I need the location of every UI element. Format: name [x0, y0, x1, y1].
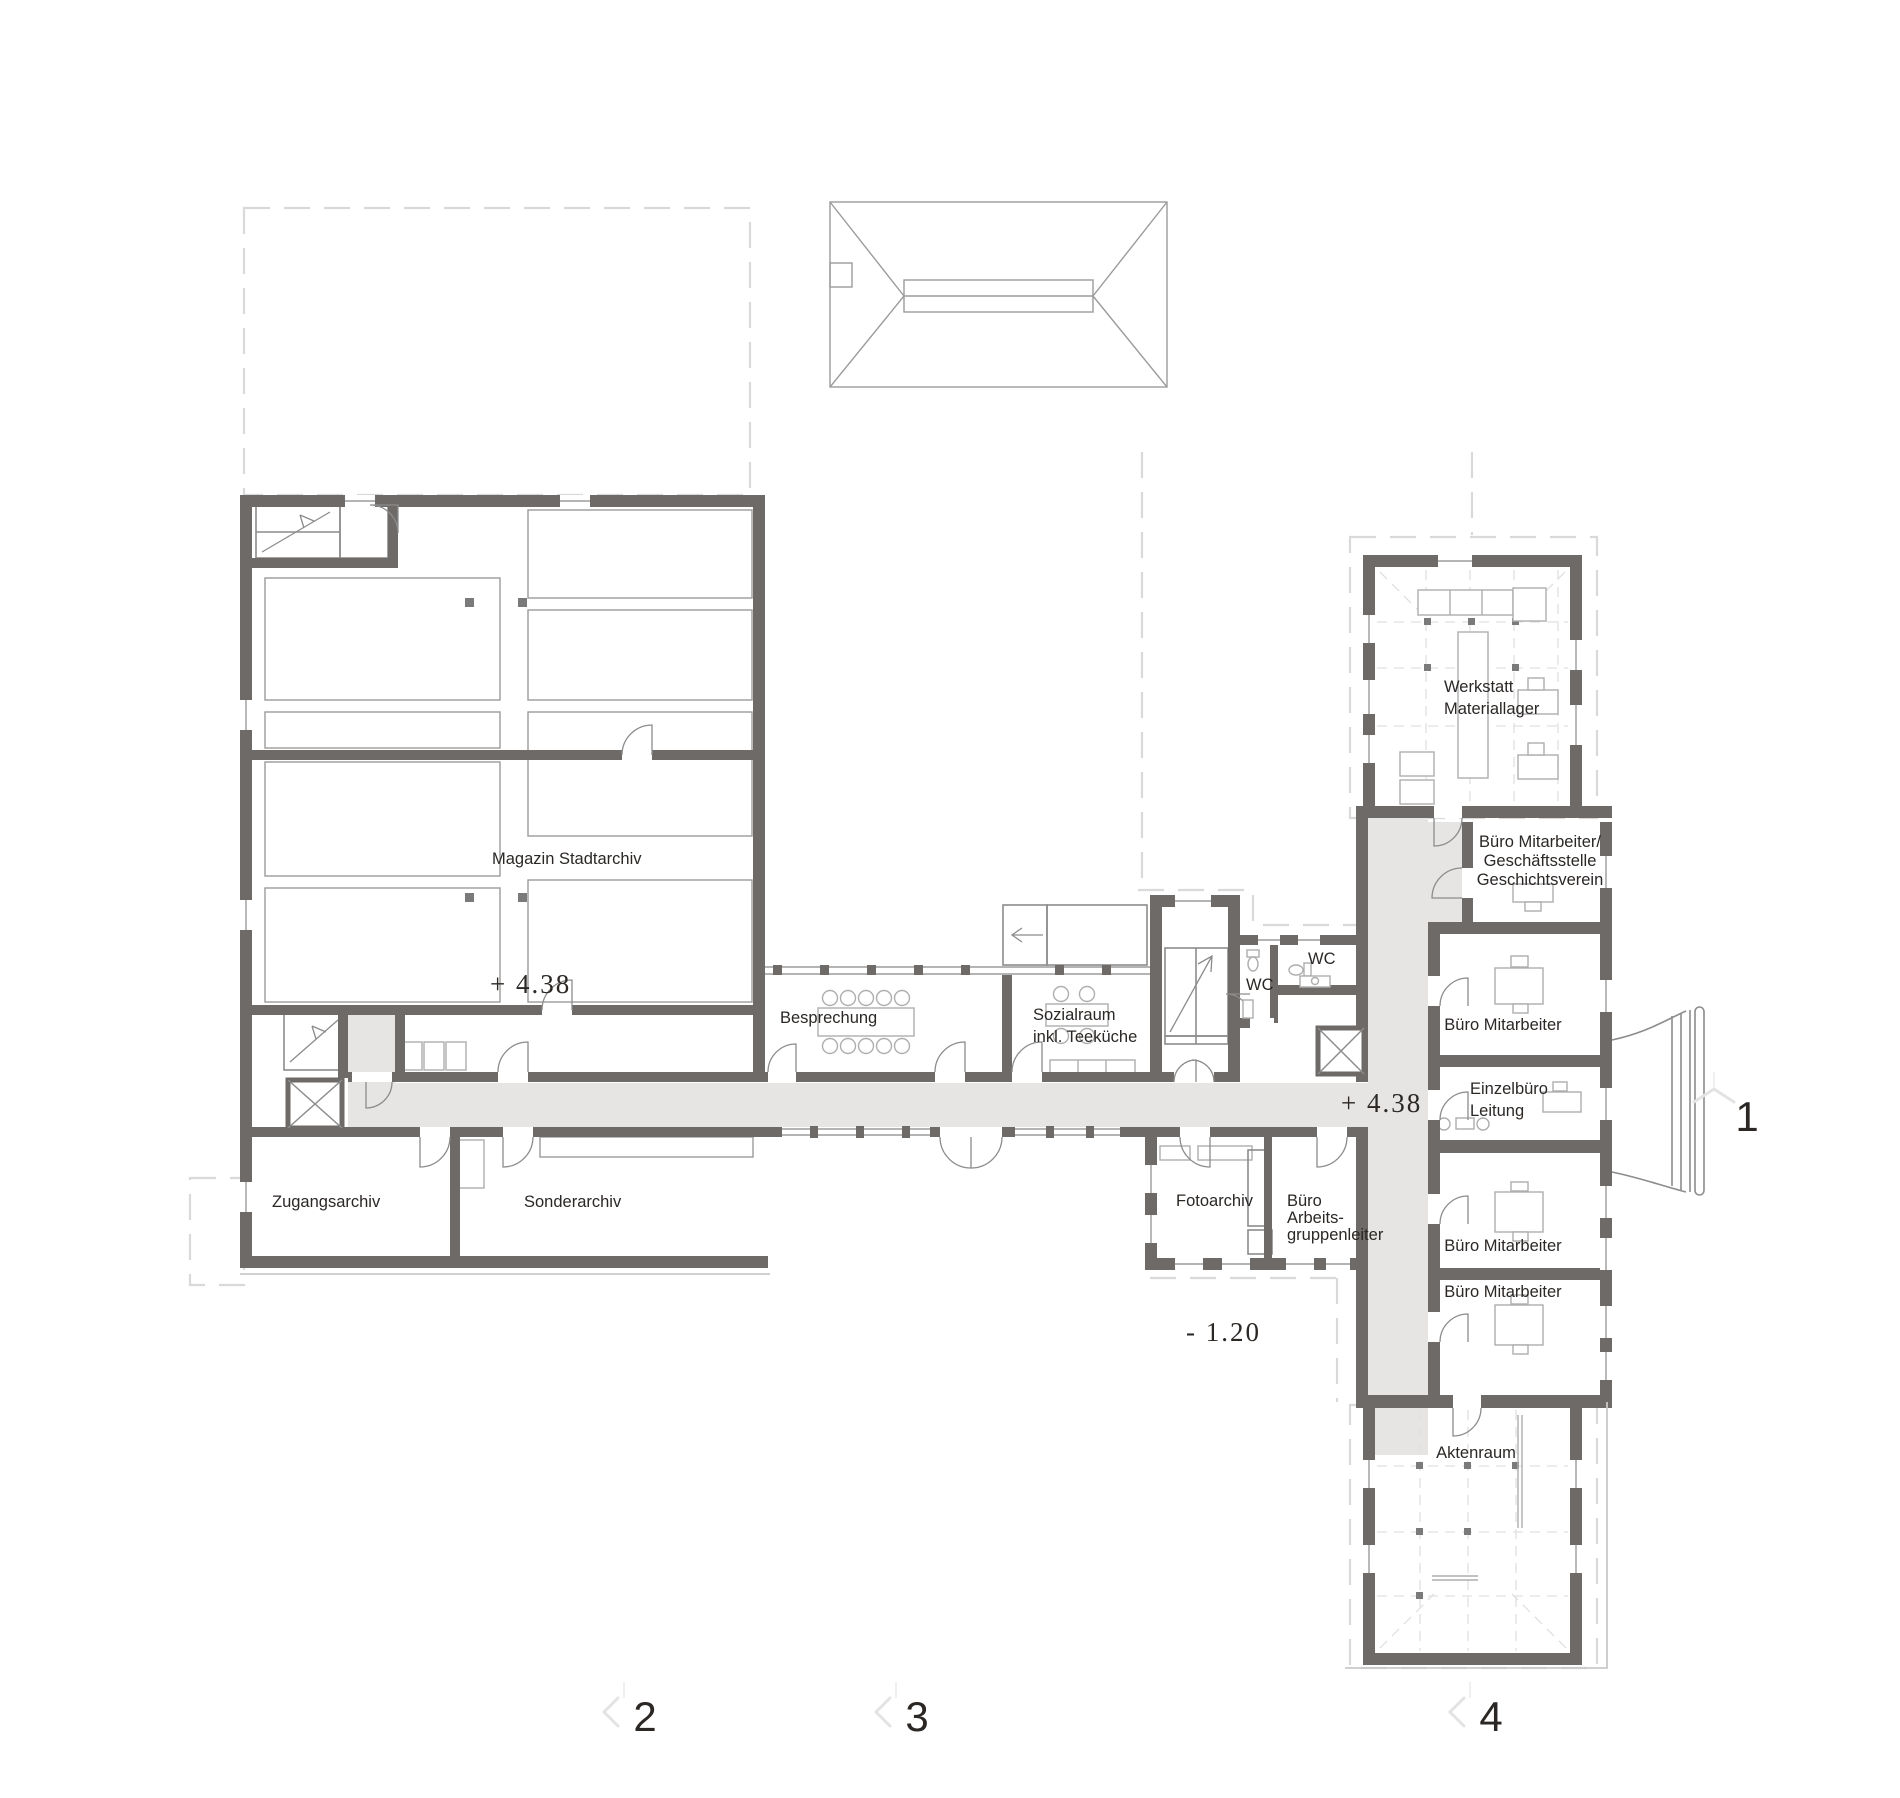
label-sonderarchiv: Sonderarchiv: [524, 1193, 622, 1211]
desk: [1495, 968, 1543, 1004]
cabinet-row: [540, 1137, 753, 1157]
label-buero-gs-2: Geschäftsstelle: [1484, 852, 1597, 870]
roof-chimney: [830, 263, 852, 287]
label-aktenraum: Aktenraum: [1436, 1444, 1516, 1462]
label-level-lower: - 1.20: [1186, 1317, 1261, 1347]
axis-number-3: 3: [905, 1693, 928, 1740]
floor-plan-svg: 2 3 4 1 Magazin Stadtarchiv + 4.38 Bespr…: [0, 0, 1900, 1798]
axis-number-2: 2: [633, 1693, 656, 1740]
desk: [1495, 1305, 1543, 1345]
entrance-horn: [1612, 1007, 1704, 1195]
label-buero-m3: Büro Mitarbeiter: [1444, 1283, 1562, 1301]
floor-plan-page: 2 3 4 1 Magazin Stadtarchiv + 4.38 Bespr…: [0, 0, 1900, 1798]
label-buero-m1: Büro Mitarbeiter: [1444, 1016, 1562, 1034]
label-buero-agl-3: gruppenleiter: [1287, 1226, 1384, 1244]
roof-plan: [830, 202, 1167, 387]
label-werkstatt-2: Materiallager: [1444, 700, 1540, 718]
label-wc-left: WC: [1246, 976, 1274, 994]
label-magazin: Magazin Stadtarchiv: [492, 850, 642, 868]
label-buero-gs-1: Büro Mitarbeiter/: [1479, 833, 1601, 851]
label-buero-gs-3: Geschichtsverein: [1477, 871, 1604, 889]
label-wc-right: WC: [1308, 950, 1336, 968]
workbench: [1418, 590, 1513, 615]
label-buero-m2: Büro Mitarbeiter: [1444, 1237, 1562, 1255]
tea-kitchen-counter: [1050, 1060, 1135, 1073]
axis-number-4: 4: [1479, 1693, 1502, 1740]
label-zugangsarchiv: Zugangsarchiv: [272, 1193, 381, 1211]
label-einzelbuero-1: Einzelbüro: [1470, 1080, 1548, 1098]
label-einzelbuero-2: Leitung: [1470, 1102, 1524, 1120]
label-besprechung: Besprechung: [780, 1009, 877, 1027]
label-fotoarchiv: Fotoarchiv: [1176, 1192, 1254, 1210]
label-buero-agl-2: Arbeits-: [1287, 1209, 1344, 1227]
label-level-corridor: + 4.38: [1341, 1088, 1422, 1118]
label-level-magazin: + 4.38: [490, 969, 571, 999]
desk: [1543, 1092, 1581, 1112]
desk: [1495, 1192, 1543, 1232]
label-buero-agl-1: Büro: [1287, 1192, 1322, 1210]
label-werkstatt-1: Werkstatt: [1444, 678, 1514, 696]
axis-number-1: 1: [1735, 1093, 1758, 1140]
label-sozialraum-2: inkl. Teeküche: [1033, 1028, 1137, 1046]
label-sozialraum-1: Sozialraum: [1033, 1006, 1116, 1024]
